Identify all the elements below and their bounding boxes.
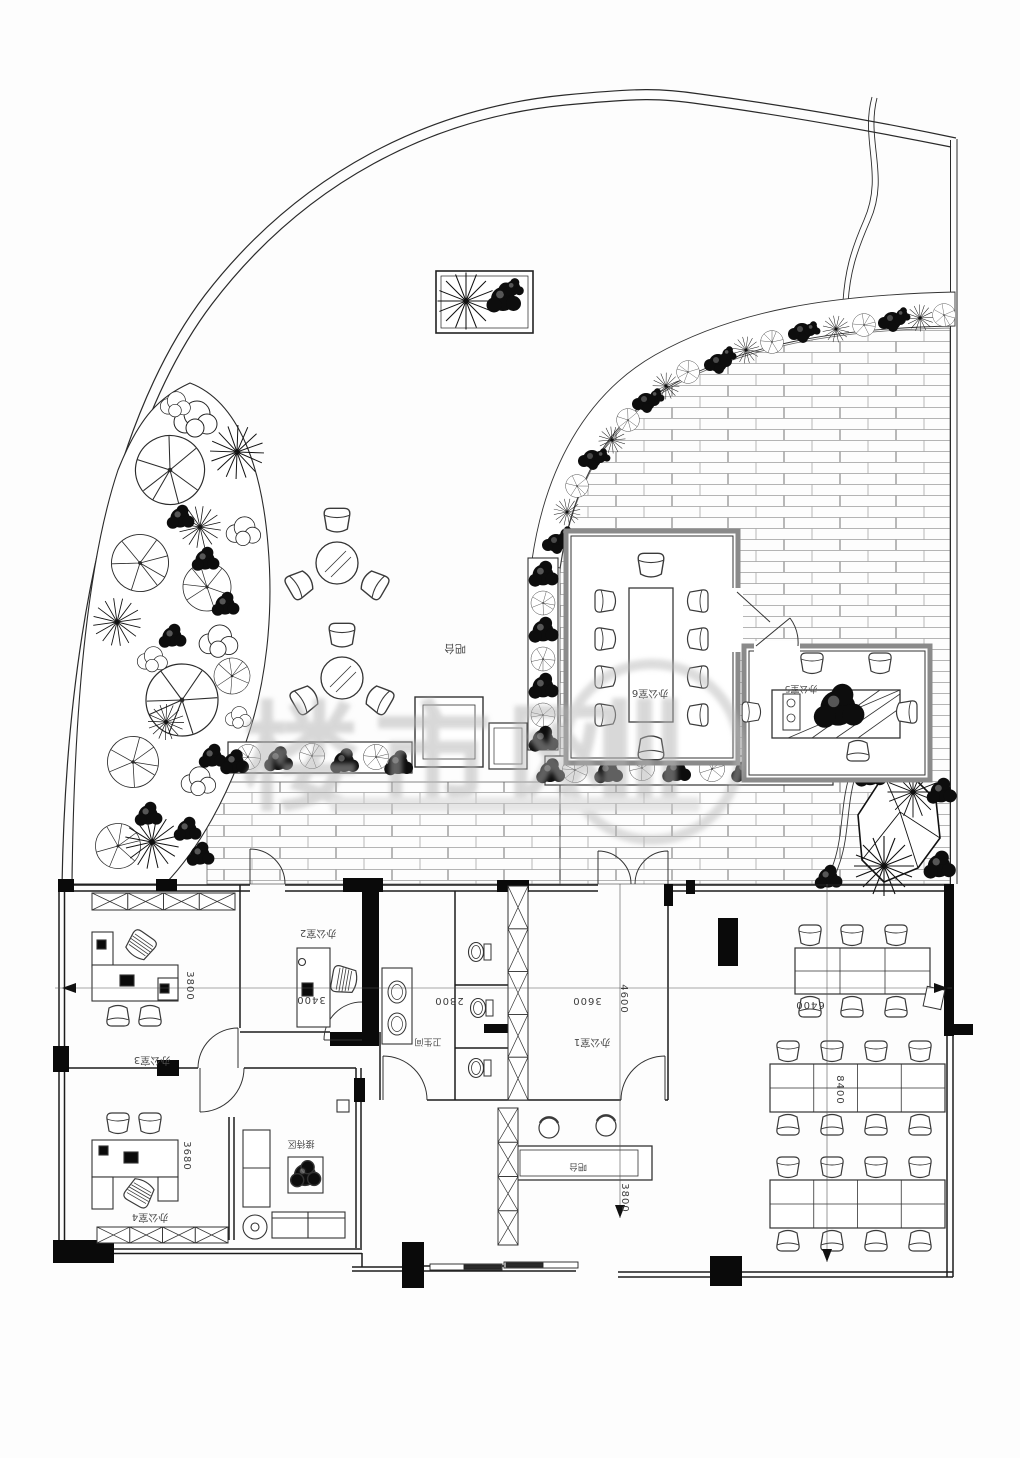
dim-3800-lobby: 3800 [619, 1183, 630, 1212]
dim-6400-open-office: 6400 [795, 999, 824, 1010]
dim-3600-office1: 3600 [572, 995, 601, 1006]
label-office-1: 办公室1 [574, 1036, 610, 1049]
label-bar-terrace: 吧台 [444, 642, 466, 656]
dim-4600-office1: 4600 [618, 984, 629, 1013]
dim-8400-open-office: 8400 [834, 1075, 845, 1104]
dim-2800-toilet: 2800 [434, 995, 463, 1006]
watermark-subtext [330, 797, 700, 812]
label-toilet: 卫生间 [414, 1036, 441, 1048]
open-office [770, 925, 945, 1251]
label-office-3: 办公室3 [134, 1054, 170, 1067]
floor-plan-canvas: 吧台 办公室6 办公室5 办公室2 办公室3 办公室4 接待区 卫生间 办公室1… [0, 0, 1020, 1458]
dim-3680-office4: 3680 [181, 1141, 192, 1170]
label-office-4: 办公室4 [132, 1211, 168, 1224]
label-bar-lobby: 吧台 [569, 1161, 587, 1173]
label-office-2: 办公室2 [300, 927, 336, 940]
dim-3400-office2: 3400 [296, 994, 325, 1005]
label-reception-area: 接待区 [287, 1138, 314, 1150]
planter-box-top [436, 271, 533, 333]
floor-plan-page: 吧台 办公室6 办公室5 办公室2 办公室3 办公室4 接待区 卫生间 办公室1… [0, 0, 1020, 1458]
label-office-5: 办公室5 [785, 683, 818, 695]
dim-3800-office3: 3800 [184, 971, 195, 1000]
